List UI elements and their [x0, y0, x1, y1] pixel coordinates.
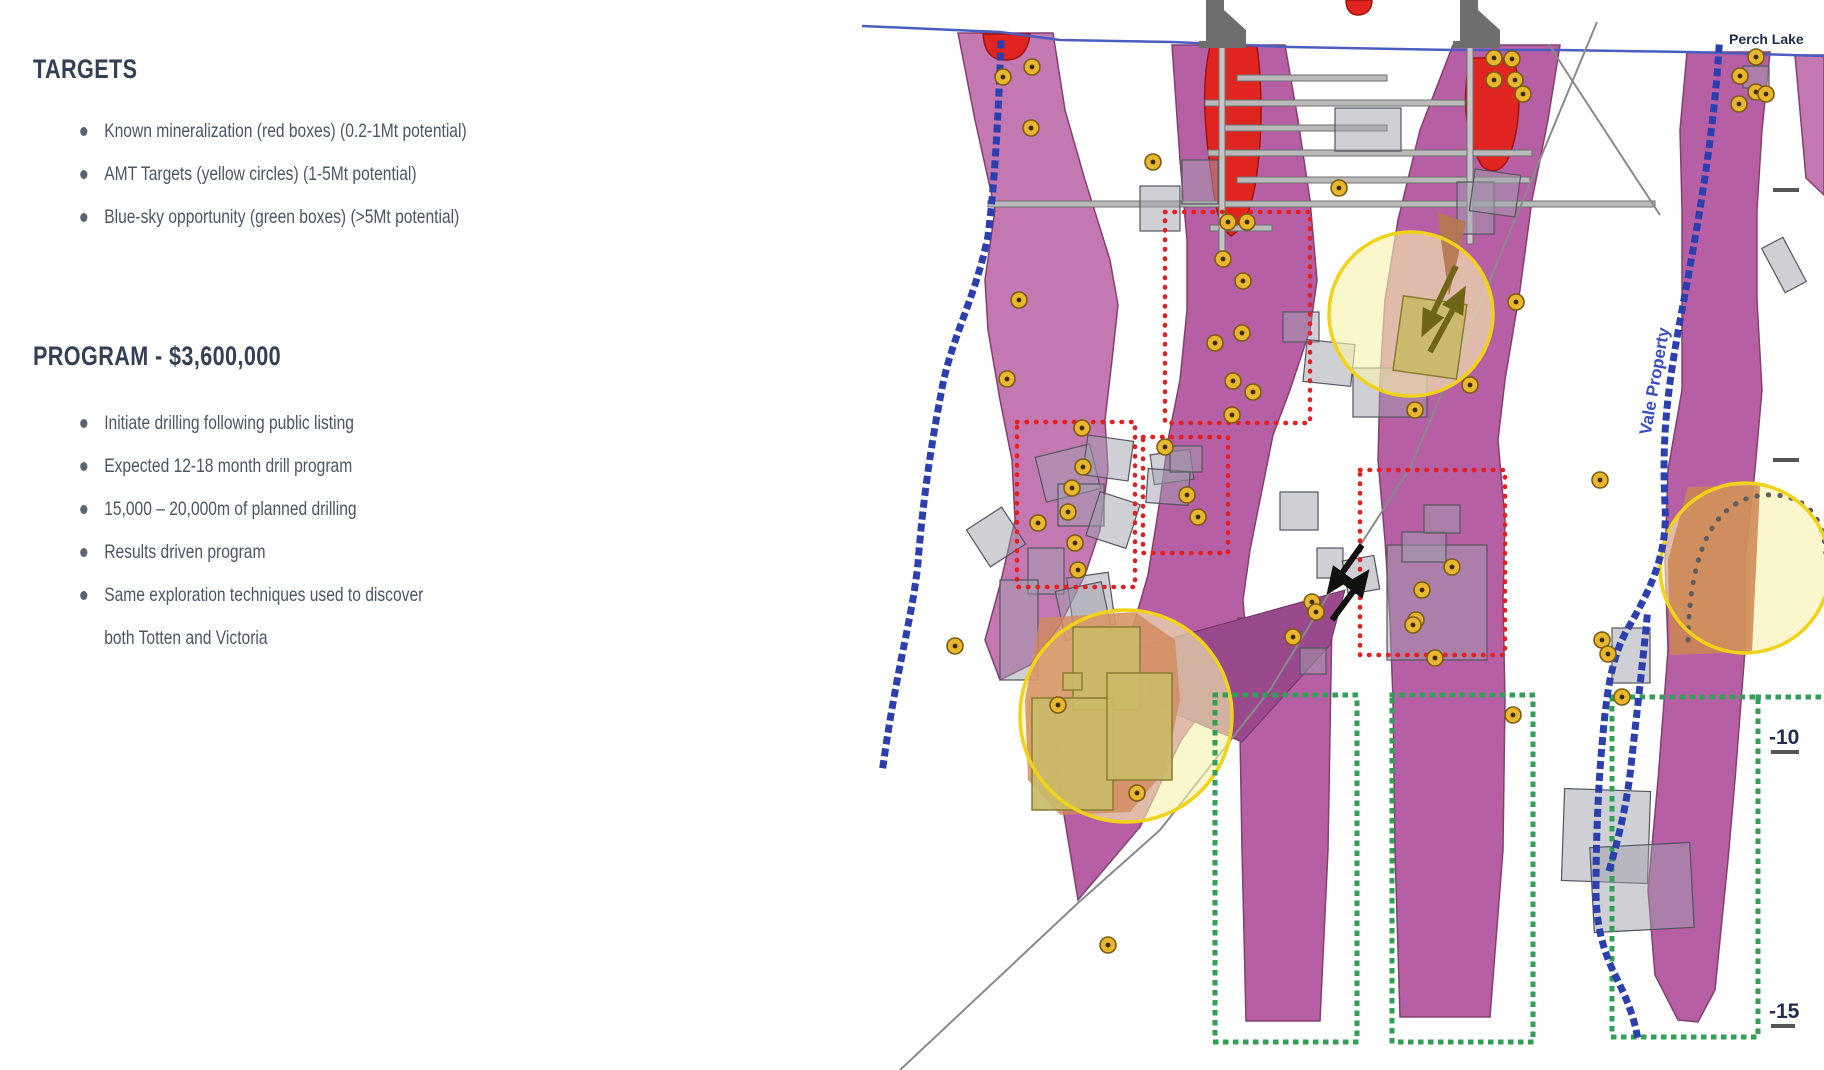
amt-dot-center	[1076, 568, 1081, 573]
amt-anomaly-dot	[1414, 582, 1430, 598]
amt-dot-center	[1413, 408, 1418, 413]
historic-working-rect	[1082, 435, 1133, 481]
headframe-icon	[1199, 0, 1246, 48]
amt-dot-center	[1231, 379, 1236, 384]
historic-working-rect	[1283, 312, 1319, 342]
amt-anomaly-dot	[1285, 629, 1301, 645]
slide: TARGETS Known mineralization (red boxes)…	[0, 0, 1824, 1070]
amt-anomaly-dot	[1157, 439, 1173, 455]
amt-anomaly-dot	[1060, 504, 1076, 520]
amt-dot-center	[1196, 515, 1201, 520]
perch-lake-label: Perch Lake	[1729, 31, 1804, 47]
amt-dot-center	[1620, 695, 1625, 700]
amt-dot-center	[1514, 300, 1519, 305]
amt-dot-center	[1468, 383, 1473, 388]
amt-anomaly-dot	[1748, 49, 1764, 65]
mine-level-bar	[1205, 100, 1465, 106]
amt-dot-center	[1411, 623, 1416, 628]
amt-dot-center	[1230, 413, 1235, 418]
amt-anomaly-dot	[1145, 154, 1161, 170]
elevation-tick	[1771, 1024, 1795, 1028]
elevation-tick	[1773, 188, 1799, 192]
amt-dot-center	[1314, 610, 1319, 615]
amt-anomaly-dot	[1235, 273, 1251, 289]
amt-anomaly-dot	[1515, 86, 1531, 102]
amt-dot-center	[1511, 713, 1516, 718]
amt-dot-center	[1106, 943, 1111, 948]
historic-working-rect	[1762, 237, 1807, 292]
amt-anomaly-dot	[1239, 214, 1255, 230]
historic-working-rect	[1280, 492, 1318, 530]
target-outline	[1032, 698, 1113, 810]
amt-anomaly-dot	[1023, 120, 1039, 136]
amt-anomaly-dot	[947, 638, 963, 654]
elevation-label: -10	[1769, 726, 1799, 749]
fault-line	[1549, 45, 1660, 215]
amt-anomaly-dot	[1064, 480, 1080, 496]
amt-target-circle	[1020, 610, 1232, 822]
amt-dot-center	[1420, 588, 1425, 593]
amt-dot-center	[1764, 92, 1769, 97]
amt-anomaly-dot	[1011, 292, 1027, 308]
amt-dot-center	[1600, 638, 1605, 643]
amt-dot-center	[1036, 521, 1041, 526]
amt-anomaly-dot	[1486, 50, 1502, 66]
amt-anomaly-dot	[1100, 937, 1116, 953]
amt-anomaly-dot	[1444, 559, 1460, 575]
amt-dot-center	[1017, 298, 1022, 303]
amt-dot-center	[1598, 478, 1603, 483]
amt-dot-center	[1337, 186, 1342, 191]
amt-anomaly-dot	[1074, 420, 1090, 436]
amt-dot-center	[1513, 78, 1518, 83]
amt-anomaly-dot	[1614, 689, 1630, 705]
amt-dot-center	[1226, 220, 1231, 225]
amt-dot-center	[1163, 445, 1168, 450]
amt-anomaly-dot	[1030, 515, 1046, 531]
historic-working-rect	[1590, 842, 1694, 932]
amt-dot-center	[1073, 541, 1078, 546]
historic-working-rect	[1170, 446, 1202, 472]
target-outline	[1107, 673, 1172, 780]
amt-dot-center	[1606, 652, 1611, 657]
amt-dot-center	[1492, 56, 1497, 61]
amt-anomaly-dot	[1075, 459, 1091, 475]
amt-dot-center	[1151, 160, 1156, 165]
historic-working-rect	[1140, 186, 1180, 231]
cross-section-diagram: Perch Lake Vale Property -10 -15	[0, 0, 1824, 1070]
elevation-tick	[1773, 458, 1799, 462]
target-outline	[1063, 673, 1082, 690]
amt-anomaly-dot	[1245, 384, 1261, 400]
amt-dot-center	[1510, 57, 1515, 62]
amt-anomaly-dot	[1220, 214, 1236, 230]
amt-anomaly-dot	[1225, 373, 1241, 389]
headframe-icon	[1453, 0, 1500, 48]
amt-dot-center	[1240, 331, 1245, 336]
ore-body	[1346, 0, 1372, 15]
amt-dot-center	[1029, 126, 1034, 131]
amt-anomaly-dot	[1405, 617, 1421, 633]
amt-dot-center	[1221, 257, 1226, 262]
amt-dot-center	[1738, 74, 1743, 79]
amt-anomaly-dot	[995, 69, 1011, 85]
amt-anomaly-dot	[1024, 59, 1040, 75]
amt-anomaly-dot	[1407, 402, 1423, 418]
amt-anomaly-dot	[1179, 487, 1195, 503]
amt-anomaly-dot	[1731, 96, 1747, 112]
amt-dot-center	[1135, 791, 1140, 796]
amt-dot-center	[1213, 341, 1218, 346]
amt-dot-center	[1185, 493, 1190, 498]
historic-working-rect	[1300, 648, 1326, 674]
amt-dot-center	[1070, 486, 1075, 491]
historic-working-rect	[1182, 160, 1218, 204]
amt-anomaly-dot	[1070, 562, 1086, 578]
mine-level-bar	[988, 201, 1655, 207]
amt-dot-center	[1433, 656, 1438, 661]
historic-working-rect	[1335, 108, 1401, 151]
amt-target-circle	[1660, 483, 1824, 655]
amt-dot-center	[1241, 279, 1246, 284]
amt-anomaly-dot	[1427, 650, 1443, 666]
amt-dot-center	[1737, 102, 1742, 107]
amt-dot-center	[953, 644, 958, 649]
elevation-label: -15	[1769, 1000, 1800, 1023]
amt-dot-center	[1081, 465, 1086, 470]
amt-anomaly-dot	[1190, 509, 1206, 525]
amt-anomaly-dot	[1067, 535, 1083, 551]
amt-anomaly-dot	[999, 371, 1015, 387]
amt-anomaly-dot	[1050, 697, 1066, 713]
dike-polygon	[1795, 55, 1824, 195]
amt-dot-center	[1066, 510, 1071, 515]
historic-working-rect	[1424, 505, 1460, 533]
amt-dot-center	[1450, 565, 1455, 570]
amt-anomaly-dot	[1732, 68, 1748, 84]
amt-dot-center	[1291, 635, 1296, 640]
amt-anomaly-dot	[1504, 51, 1520, 67]
amt-anomaly-dot	[1508, 294, 1524, 310]
amt-anomaly-dot	[1308, 604, 1324, 620]
amt-anomaly-dot	[1129, 785, 1145, 801]
amt-anomaly-dot	[1224, 407, 1240, 423]
elevation-tick	[1771, 750, 1799, 754]
amt-anomaly-dot	[1234, 325, 1250, 341]
amt-dot-center	[1005, 377, 1010, 382]
amt-anomaly-dot	[1462, 377, 1478, 393]
amt-dot-center	[1492, 78, 1497, 83]
historic-working-rect	[1469, 169, 1520, 217]
amt-dot-center	[1521, 92, 1526, 97]
mine-level-bar	[1237, 75, 1387, 81]
amt-dot-center	[1030, 65, 1035, 70]
amt-anomaly-dot	[1207, 335, 1223, 351]
amt-dot-center	[1001, 75, 1006, 80]
amt-anomaly-dot	[1486, 72, 1502, 88]
amt-dot-center	[1245, 220, 1250, 225]
amt-anomaly-dot	[1215, 251, 1231, 267]
amt-anomaly-dot	[1600, 646, 1616, 662]
amt-dot-center	[1754, 55, 1759, 60]
historic-working-rect	[1402, 532, 1446, 562]
amt-dot-center	[1251, 390, 1256, 395]
amt-dot-center	[1056, 703, 1061, 708]
amt-dot-center	[1080, 426, 1085, 431]
amt-anomaly-dot	[1331, 180, 1347, 196]
amt-anomaly-dot	[1592, 472, 1608, 488]
amt-anomaly-dot	[1758, 86, 1774, 102]
amt-anomaly-dot	[1505, 707, 1521, 723]
